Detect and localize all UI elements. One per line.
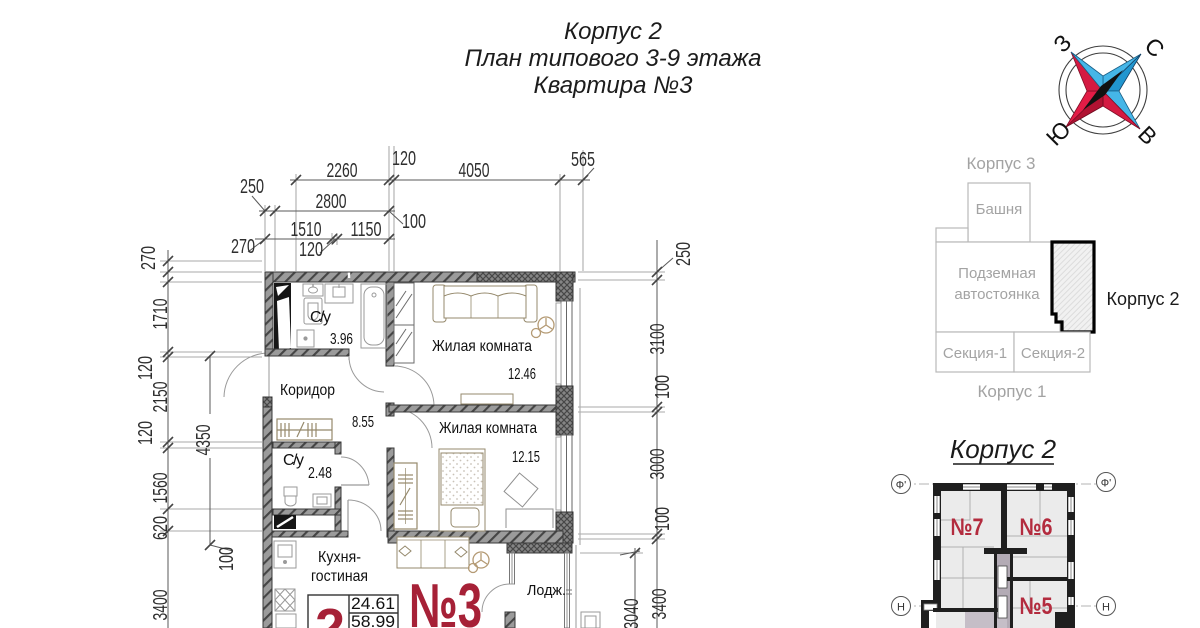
svg-text:Н: Н — [897, 602, 905, 614]
svg-text:100: 100 — [216, 547, 238, 571]
svg-text:250: 250 — [673, 242, 695, 266]
svg-text:Ф': Ф' — [1101, 478, 1111, 490]
svg-text:3100: 3100 — [647, 324, 669, 355]
svg-text:4350: 4350 — [193, 425, 215, 456]
svg-text:С/у: С/у — [310, 309, 331, 326]
svg-text:Корпус 3: Корпус 3 — [966, 154, 1035, 173]
svg-text:2: 2 — [315, 598, 345, 628]
svg-text:250: 250 — [240, 176, 264, 198]
svg-text:24.61: 24.61 — [351, 594, 395, 613]
svg-text:3400: 3400 — [150, 590, 172, 621]
svg-text:№3: №3 — [409, 572, 482, 628]
svg-text:Жилая комната: Жилая комната — [439, 420, 537, 437]
svg-text:Подземная: Подземная — [958, 265, 1036, 282]
svg-text:2800: 2800 — [316, 191, 347, 213]
svg-text:Кухня-: Кухня- — [318, 549, 361, 566]
svg-text:№7: №7 — [951, 514, 984, 541]
svg-text:План типового 3-9 этажа: План типового 3-9 этажа — [464, 45, 761, 72]
svg-text:1150: 1150 — [351, 219, 382, 241]
svg-text:Н: Н — [1102, 602, 1110, 614]
svg-text:3000: 3000 — [647, 449, 669, 480]
svg-text:58.99: 58.99 — [351, 612, 395, 628]
svg-text:Башня: Башня — [976, 201, 1023, 218]
svg-text:Секция-1: Секция-1 — [943, 345, 1007, 362]
svg-text:100: 100 — [652, 375, 674, 399]
svg-text:270: 270 — [138, 246, 160, 270]
svg-text:Корпус 2: Корпус 2 — [564, 18, 662, 45]
svg-text:620: 620 — [150, 516, 172, 540]
svg-text:№6: №6 — [1020, 514, 1053, 541]
svg-text:Корпус 2: Корпус 2 — [950, 434, 1057, 464]
svg-text:Корпус 1: Корпус 1 — [977, 382, 1046, 401]
svg-text:270: 270 — [231, 236, 255, 258]
svg-text:3.96: 3.96 — [330, 331, 353, 348]
svg-text:С/у: С/у — [283, 452, 304, 469]
svg-text:120: 120 — [299, 239, 323, 261]
svg-text:120: 120 — [135, 356, 157, 380]
svg-text:100: 100 — [402, 211, 426, 233]
svg-text:2150: 2150 — [150, 382, 172, 413]
svg-text:2260: 2260 — [327, 160, 358, 182]
svg-text:565: 565 — [571, 149, 595, 171]
svg-text:Ф': Ф' — [896, 480, 906, 492]
svg-text:Лодж.: Лодж. — [527, 582, 566, 599]
svg-text:12.15: 12.15 — [512, 449, 540, 466]
svg-text:12.46: 12.46 — [508, 366, 536, 383]
svg-text:2.48: 2.48 — [308, 465, 332, 482]
svg-text:№5: №5 — [1020, 593, 1053, 620]
svg-text:автостоянка: автостоянка — [954, 286, 1040, 303]
svg-text:Корпус 2: Корпус 2 — [1106, 289, 1179, 309]
svg-text:3040: 3040 — [621, 599, 643, 628]
svg-text:1510: 1510 — [291, 219, 322, 241]
svg-text:Квартира №3: Квартира №3 — [534, 72, 694, 99]
svg-text:3400: 3400 — [649, 589, 671, 620]
svg-text:Секция-2: Секция-2 — [1021, 345, 1085, 362]
svg-text:гостиная: гостиная — [311, 568, 368, 585]
svg-text:Коридор: Коридор — [280, 382, 335, 399]
svg-text:Жилая комната: Жилая комната — [432, 338, 532, 355]
svg-text:8.55: 8.55 — [352, 414, 374, 431]
svg-text:120: 120 — [135, 421, 157, 445]
svg-text:100: 100 — [652, 507, 674, 531]
svg-text:1710: 1710 — [150, 299, 172, 330]
svg-text:120: 120 — [392, 148, 416, 170]
svg-text:1560: 1560 — [150, 473, 172, 504]
svg-text:4050: 4050 — [459, 160, 490, 182]
